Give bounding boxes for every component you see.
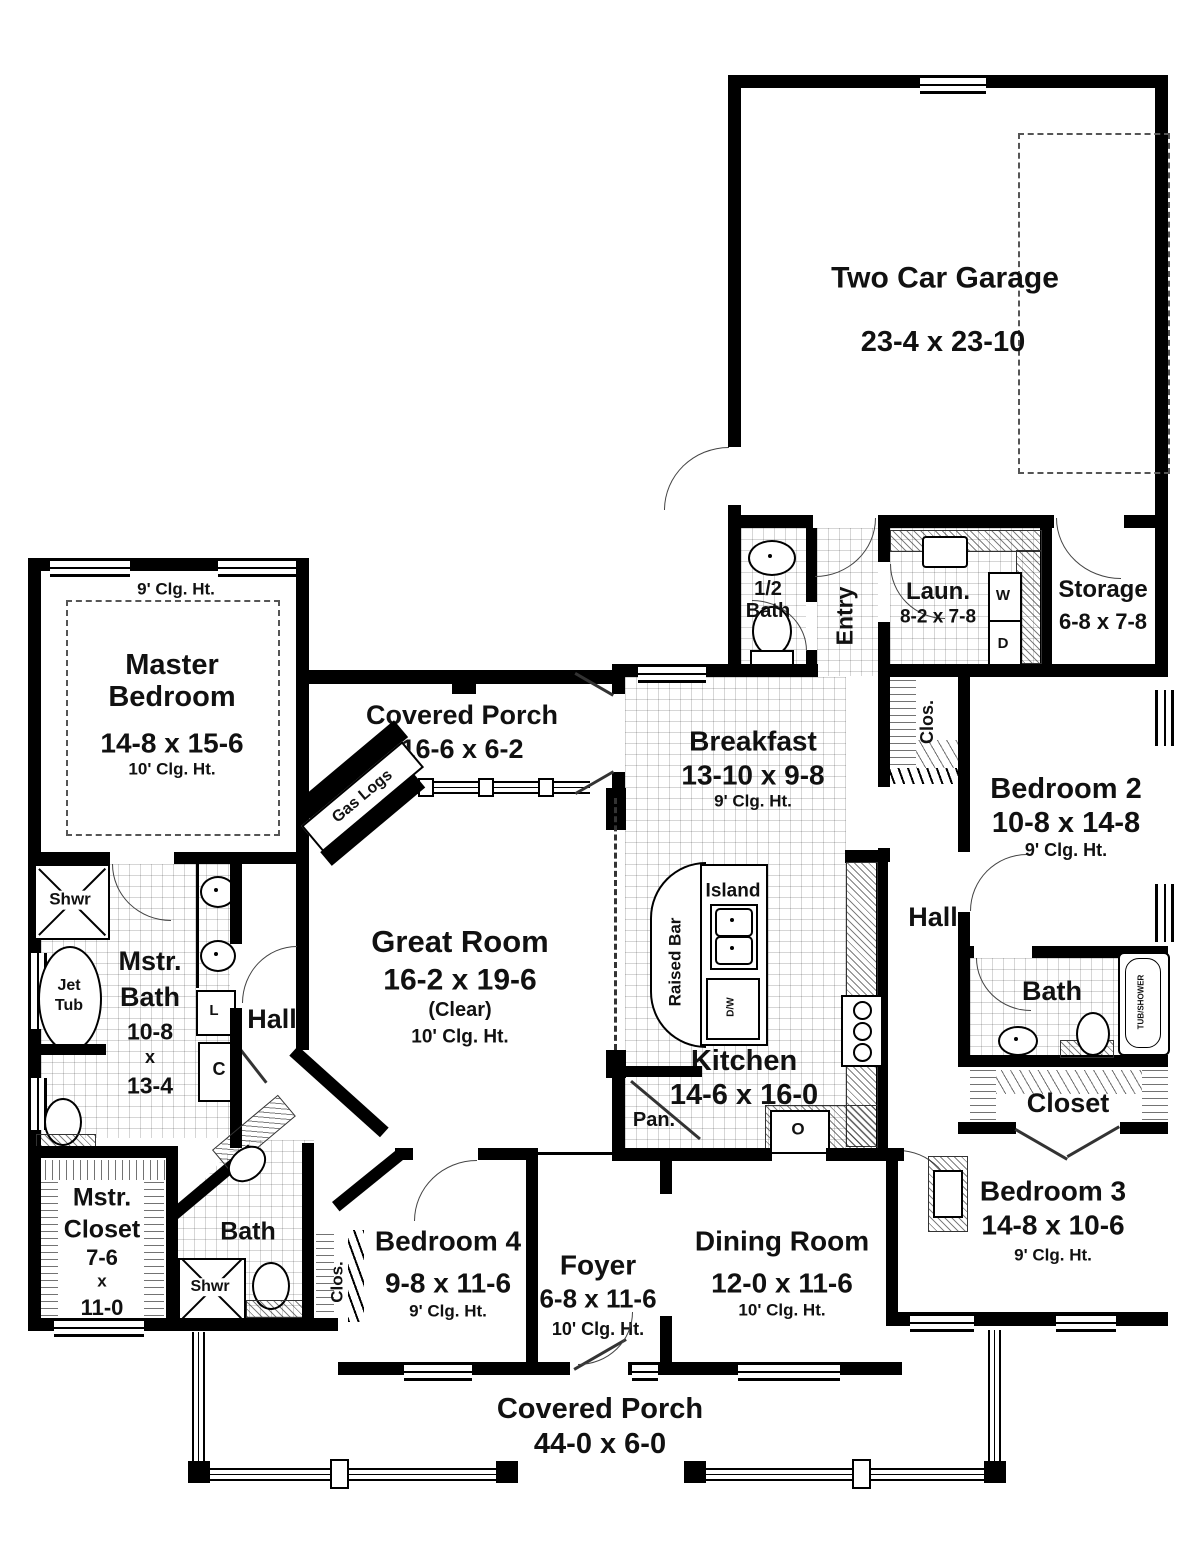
room-note: (Clear) <box>428 999 491 1021</box>
ceiling-break-dashed <box>614 798 617 1050</box>
room-label: Bath <box>220 1218 276 1246</box>
room-dims: 12-0 x 11-6 <box>711 1269 853 1300</box>
room-label: Covered Porch <box>497 1394 703 1426</box>
wall <box>878 664 1168 677</box>
room-dims: 13-10 x 9-8 <box>681 761 824 792</box>
porch-railing <box>192 1332 205 1470</box>
wall <box>1155 528 1168 677</box>
wall <box>728 505 741 528</box>
closet-rod <box>38 1160 176 1180</box>
vanity-edge <box>196 864 199 988</box>
shower-label: Shwr <box>188 1278 231 1296</box>
dryer-label: D <box>998 636 1009 653</box>
door-swing <box>1056 518 1121 579</box>
window <box>404 1362 472 1381</box>
room-dims: x <box>97 1273 106 1292</box>
ceiling-note: 9' Clg. Ht. <box>1025 841 1107 861</box>
porch-post <box>852 1459 871 1489</box>
room-label: Dining Room <box>695 1227 869 1258</box>
wall <box>28 852 110 864</box>
closet-rod <box>916 740 958 768</box>
closet-label: Clos. <box>918 700 938 744</box>
window <box>54 1318 144 1337</box>
window <box>1155 884 1174 942</box>
ceiling-note: 10' Clg. Ht. <box>738 1302 825 1321</box>
ceiling-note: 10' Clg. Ht. <box>128 761 215 780</box>
wall <box>958 946 974 958</box>
master-tray-ceiling-outline <box>66 600 280 836</box>
room-label: Storage <box>1058 577 1147 603</box>
window <box>920 75 986 94</box>
porch-post <box>452 670 476 694</box>
wall <box>612 1066 702 1077</box>
ceiling-note: 9' Clg. Ht. <box>137 581 215 600</box>
hall-label: Hall <box>247 1005 297 1035</box>
closet-rod <box>970 1070 996 1120</box>
window <box>1056 1313 1116 1332</box>
wall <box>1124 515 1168 528</box>
wall <box>741 515 813 528</box>
closet-door-leaf <box>1067 1126 1120 1158</box>
room-dims: 9-8 x 11-6 <box>385 1269 511 1300</box>
room-label: Bedroom 4 <box>375 1227 521 1258</box>
room-label: Foyer <box>560 1251 636 1282</box>
washer-label: W <box>996 588 1010 605</box>
drain-dot <box>214 952 218 956</box>
room-label: Laun. <box>906 579 970 605</box>
sink-basin <box>715 936 753 965</box>
porch-post <box>188 1461 210 1483</box>
wall <box>230 852 242 944</box>
raised-bar-label: Raised Bar <box>667 918 686 1007</box>
sink <box>998 1026 1038 1056</box>
room-label: Mstr. <box>118 947 181 977</box>
room-dims: 10-8 <box>127 1019 173 1044</box>
room-dims: 14-6 x 16-0 <box>670 1080 818 1112</box>
room-dims: 14-8 x 15-6 <box>100 729 243 760</box>
wall <box>289 1046 388 1137</box>
closet-rod <box>890 680 916 768</box>
wall <box>728 664 818 677</box>
wall <box>296 558 309 865</box>
closet-label: Closet <box>1027 1089 1110 1119</box>
vanity-counter <box>246 1300 304 1318</box>
room-label: Mstr. <box>73 1184 131 1212</box>
room-dims: 13-4 <box>127 1073 173 1098</box>
room-dims: 10-8 x 14-8 <box>992 808 1140 840</box>
ceiling-note: 10' Clg. Ht. <box>411 1028 508 1049</box>
jet-tub-label: Tub <box>55 997 83 1015</box>
wall <box>878 528 890 562</box>
room-label: Kitchen <box>691 1046 797 1078</box>
pantry-label: Pan. <box>633 1109 675 1131</box>
room-label: Closet <box>64 1216 140 1244</box>
oven-label: O <box>791 1121 804 1140</box>
porch-railing <box>988 1330 1001 1470</box>
room-dims: 11-0 <box>81 1296 124 1320</box>
porch-railing <box>686 1468 996 1481</box>
linen-label: L <box>209 1003 218 1020</box>
bifold-door <box>348 1230 364 1322</box>
room-label: Two Car Garage <box>830 262 1060 295</box>
closet-rod <box>144 1182 164 1318</box>
porch-post <box>330 1459 349 1489</box>
floor-plan: Two Car Garage 23-4 x 23-10 W D 1/2 Bath… <box>0 0 1200 1553</box>
drain-dot <box>214 888 218 892</box>
wall <box>826 1148 904 1161</box>
wall <box>886 1148 898 1326</box>
wall <box>296 865 309 1050</box>
ceiling-note: 9' Clg. Ht. <box>714 793 792 812</box>
garage-storage-dashed-outline <box>1018 133 1170 474</box>
room-dims: 16-2 x 19-6 <box>383 964 536 997</box>
room-dims: 7-6 <box>86 1246 118 1270</box>
porch-post <box>984 1461 1006 1483</box>
sink <box>200 940 236 972</box>
wall <box>395 1148 413 1160</box>
porch-post <box>478 778 494 797</box>
room-label: 1/2 Bath <box>736 578 800 622</box>
room-label: Breakfast <box>689 727 817 758</box>
wall <box>728 75 741 447</box>
door-swing <box>414 1160 477 1221</box>
porch-post <box>496 1461 518 1483</box>
faucet-dot <box>768 554 772 558</box>
porch-post <box>538 778 554 797</box>
room-dims: 6-8 x 11-6 <box>539 1285 656 1314</box>
porch-post <box>684 1461 706 1483</box>
room-dims: 8-2 x 7-8 <box>900 608 976 629</box>
island-label: Island <box>706 882 761 903</box>
burner <box>853 1043 872 1062</box>
room-label: Great Room <box>371 925 548 959</box>
room-dims: x <box>145 1048 155 1068</box>
wall <box>878 515 1054 528</box>
porch-railing <box>192 1468 508 1481</box>
room-dims: 14-8 x 10-6 <box>981 1211 1124 1242</box>
room-label: Bath <box>1022 977 1082 1007</box>
door-swing <box>664 447 729 510</box>
toilet <box>1076 1012 1110 1056</box>
room-dims: 6-8 x 7-8 <box>1059 610 1147 634</box>
wall <box>1120 1122 1168 1134</box>
wall <box>526 1148 538 1362</box>
burner <box>853 1022 872 1041</box>
closet-c-label: C <box>213 1060 226 1080</box>
bifold-door <box>884 768 958 784</box>
burner <box>853 1001 872 1020</box>
wall <box>958 958 970 1058</box>
wall <box>28 1146 178 1158</box>
room-label: Entry <box>832 587 857 646</box>
window <box>638 664 706 683</box>
ceiling-note: 9' Clg. Ht. <box>409 1303 487 1322</box>
window <box>738 1362 840 1381</box>
wall <box>878 848 890 862</box>
window <box>910 1313 974 1332</box>
door-swing <box>242 946 297 1003</box>
wall <box>302 1143 314 1323</box>
hall-niche-sink <box>933 1170 963 1218</box>
wall <box>28 1044 106 1055</box>
drain-dot <box>730 918 734 922</box>
room-dims: 44-0 x 6-0 <box>534 1429 666 1461</box>
sink <box>748 540 796 576</box>
wall <box>612 664 625 694</box>
room-label: Master Bedroom <box>65 650 280 714</box>
closet-rod <box>38 1182 58 1318</box>
tub-shower-label: TUB/SHOWER <box>1138 975 1147 1030</box>
sink-basin <box>715 908 753 937</box>
closet-door-leaf <box>1015 1128 1068 1160</box>
laundry-sink <box>922 536 968 568</box>
window <box>218 558 296 577</box>
drain-dot <box>730 946 734 950</box>
wall <box>958 912 970 948</box>
shower-label: Shwr <box>47 891 93 910</box>
window <box>50 558 130 577</box>
drain-dot <box>1014 1037 1018 1041</box>
room-label: Bedroom 2 <box>990 774 1141 806</box>
window <box>1155 690 1174 746</box>
door-swing <box>578 1312 633 1365</box>
door-swing <box>970 854 1027 911</box>
wall <box>958 664 970 852</box>
room-label: Bath <box>120 983 180 1013</box>
closet-rod <box>1142 1070 1168 1120</box>
wall <box>612 1066 625 1150</box>
window <box>632 1362 658 1381</box>
jet-tub-label: Jet <box>57 977 80 995</box>
wall <box>612 1148 772 1161</box>
wall <box>660 1316 672 1362</box>
dishwasher-label: D/W <box>726 997 737 1016</box>
room-label: Bedroom 3 <box>980 1177 1126 1208</box>
hall-label: Hall <box>908 903 958 933</box>
ceiling-note: 9' Clg. Ht. <box>1014 1247 1092 1266</box>
closet-label: Clos. <box>329 1261 348 1303</box>
room-dims: 23-4 x 23-10 <box>861 327 1025 359</box>
wall <box>958 1122 1016 1134</box>
